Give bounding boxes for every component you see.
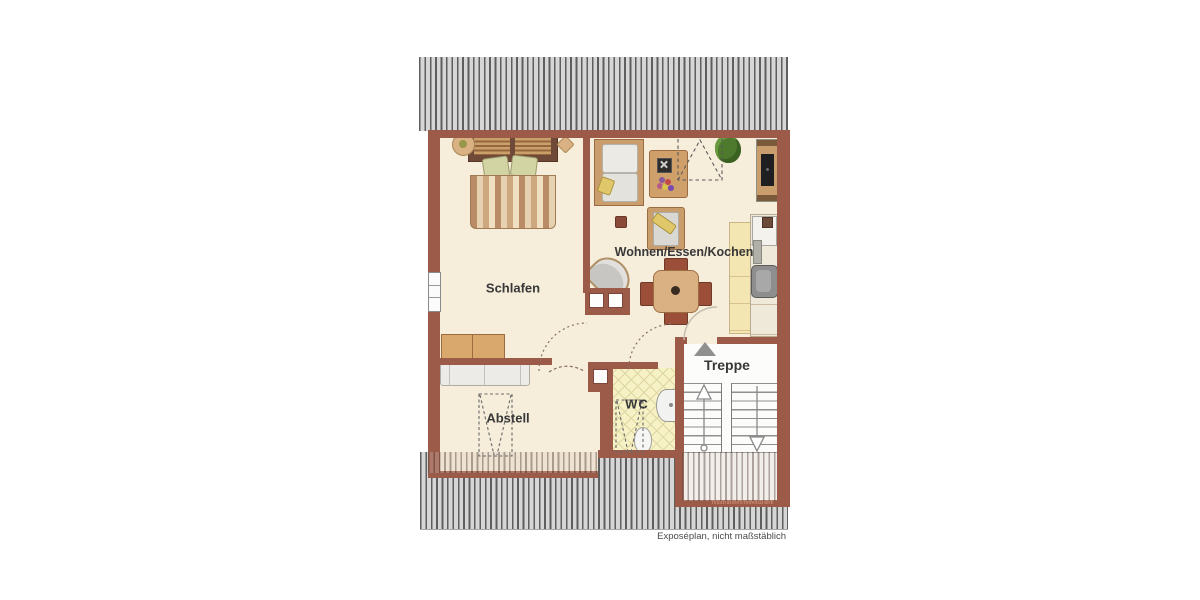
stair-entry-arrow (694, 342, 716, 356)
room-label-abstell: Abstell (486, 411, 529, 426)
dining-table (653, 270, 699, 313)
wall-left-upper (428, 130, 440, 272)
kitchen-cabinets (729, 222, 752, 334)
wall-stairwell-top-left (675, 337, 687, 344)
roof-overlap-stairwell (682, 452, 777, 501)
room-label-treppe: Treppe (704, 357, 750, 373)
flower-bouquet (659, 177, 665, 183)
wall-right (777, 130, 790, 507)
roof-hatch-top (419, 57, 788, 131)
faucet (753, 240, 762, 264)
armchair (647, 207, 685, 250)
room-label-wohnen: Wohnen/Essen/Kochen (615, 245, 754, 259)
wall-schlafen-abstell (428, 358, 552, 365)
wall-stairwell-top-right (717, 337, 779, 344)
potted-plant (715, 135, 741, 163)
wall-wc-left (600, 392, 613, 450)
stair-divider (721, 383, 732, 452)
duct-block-wc (588, 362, 613, 392)
illustrator-watermark: Illustration©ImmoGrafik (712, 500, 774, 506)
stool (615, 216, 627, 228)
coffee-table (649, 150, 688, 198)
wall-wc-top (613, 362, 658, 369)
wc-sink (656, 389, 677, 422)
room-label-schlafen: Schlafen (486, 281, 540, 296)
storage-sofa (440, 363, 530, 386)
stove-knob (762, 217, 773, 228)
footer-note: Exposéplan, nicht maßstäblich (657, 531, 786, 542)
roof-overlap-abstell (428, 452, 598, 473)
bed-duvet (470, 175, 556, 229)
wall-schlafen-wohnen (583, 138, 590, 293)
wall-bottom-wc (598, 450, 675, 458)
window-left (428, 272, 441, 312)
board-game (657, 158, 672, 173)
wall-top (428, 130, 789, 138)
floor-plan: Schlafen Wohnen/Essen/Kochen WC Treppe A… (0, 0, 1200, 600)
tv-screen (761, 154, 774, 186)
chimney-block (585, 288, 630, 315)
room-label-wc: WC (625, 397, 649, 412)
sofa (594, 139, 644, 206)
kitchen-sink (751, 265, 778, 298)
